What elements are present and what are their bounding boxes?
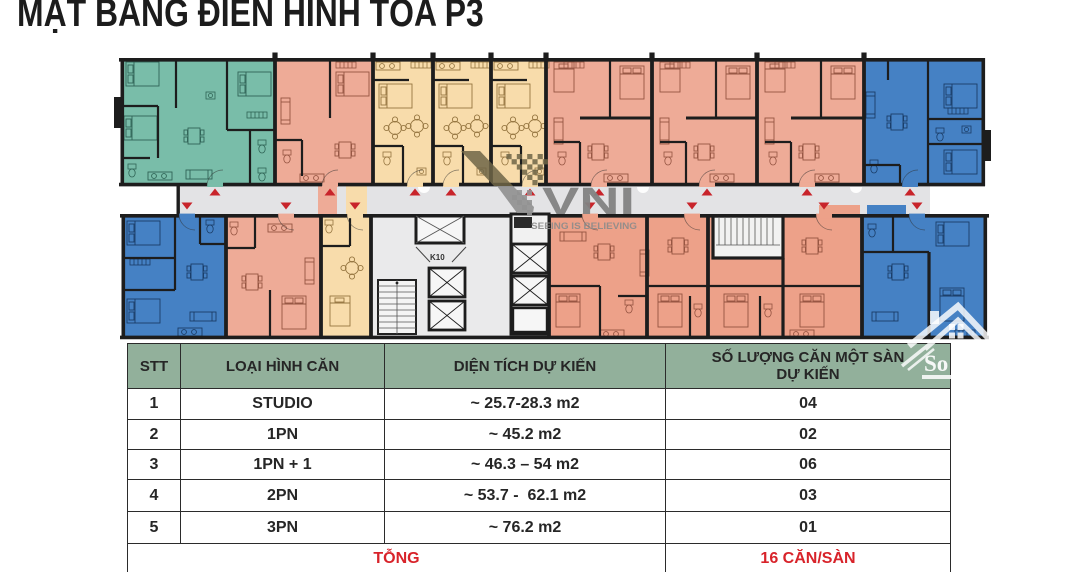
- svg-text:SEEING IS BELIEVING: SEEING IS BELIEVING: [531, 221, 637, 232]
- svg-text:K10: K10: [430, 253, 445, 262]
- svg-text:So: So: [924, 351, 948, 376]
- svg-text:VNI: VNI: [542, 181, 635, 223]
